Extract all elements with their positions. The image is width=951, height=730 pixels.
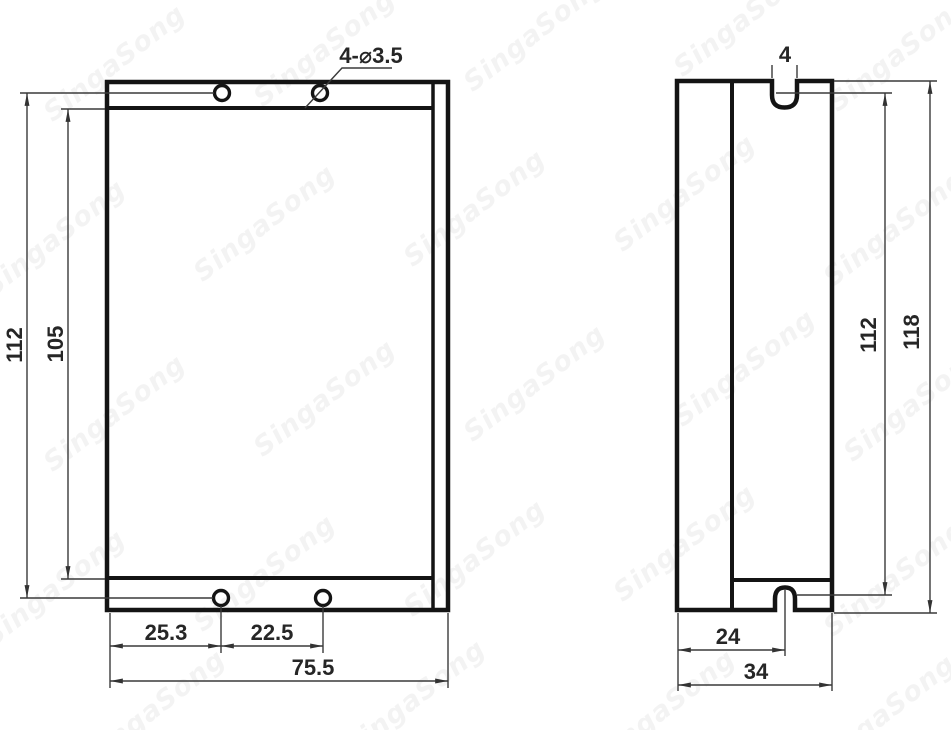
watermark-text: SingaSong xyxy=(188,158,342,288)
dim-label-25-3: 25.3 xyxy=(145,620,188,645)
side-slot-dimension: 4 xyxy=(772,42,797,78)
watermark-text: SingaSong xyxy=(668,0,822,83)
watermark-text: SingaSong xyxy=(0,523,132,653)
watermark-text: SingaSong xyxy=(0,173,132,303)
watermark-text: SingaSong xyxy=(823,0,951,118)
mounting-hole-top-left xyxy=(215,86,230,101)
technical-drawing: SingaSong SingaSong SingaSong SingaSong … xyxy=(0,0,951,730)
side-vertical-dimensions: 112 118 xyxy=(776,81,937,613)
callout-leader-line xyxy=(305,68,392,108)
dim-label-118: 118 xyxy=(899,314,924,350)
watermark-text: SingaSong xyxy=(588,643,742,730)
watermark-text: SingaSong xyxy=(188,508,342,638)
dim-label-24: 24 xyxy=(716,624,741,649)
watermark-text: SingaSong xyxy=(458,318,612,448)
watermark-text: SingaSong xyxy=(608,478,762,608)
front-view-outline xyxy=(107,82,448,610)
drawing-canvas: SingaSong SingaSong SingaSong SingaSong … xyxy=(0,0,951,730)
watermark-text: SingaSong xyxy=(398,143,552,273)
dim-label-112: 112 xyxy=(2,327,27,363)
watermark-text: SingaSong xyxy=(668,303,822,433)
watermark-text: SingaSong xyxy=(38,348,192,478)
watermark-text: SingaSong xyxy=(458,0,612,98)
watermark-text: SingaSong xyxy=(248,333,402,463)
dim-label-22-5: 22.5 xyxy=(251,620,294,645)
dim-label-112-side: 112 xyxy=(856,317,881,353)
mounting-hole-bottom-right xyxy=(316,591,331,606)
dim-label-34: 34 xyxy=(744,659,769,684)
hole-callout-label: 4-⌀3.5 xyxy=(339,43,402,68)
watermark-text: SingaSong xyxy=(338,633,492,730)
watermark-text: SingaSong xyxy=(808,648,951,730)
dim-label-75-5: 75.5 xyxy=(292,655,335,680)
watermark-text: SingaSong xyxy=(398,493,552,623)
front-bottom-dimensions: 25.3 22.5 75.5 xyxy=(110,606,448,688)
dim-label-4: 4 xyxy=(779,42,792,67)
watermark-text: SingaSong xyxy=(78,643,232,730)
watermark-text: SingaSong xyxy=(838,338,951,468)
dim-label-105: 105 xyxy=(43,326,68,363)
front-outer-rectangle xyxy=(107,82,448,610)
watermark-text: SingaSong xyxy=(608,128,762,258)
